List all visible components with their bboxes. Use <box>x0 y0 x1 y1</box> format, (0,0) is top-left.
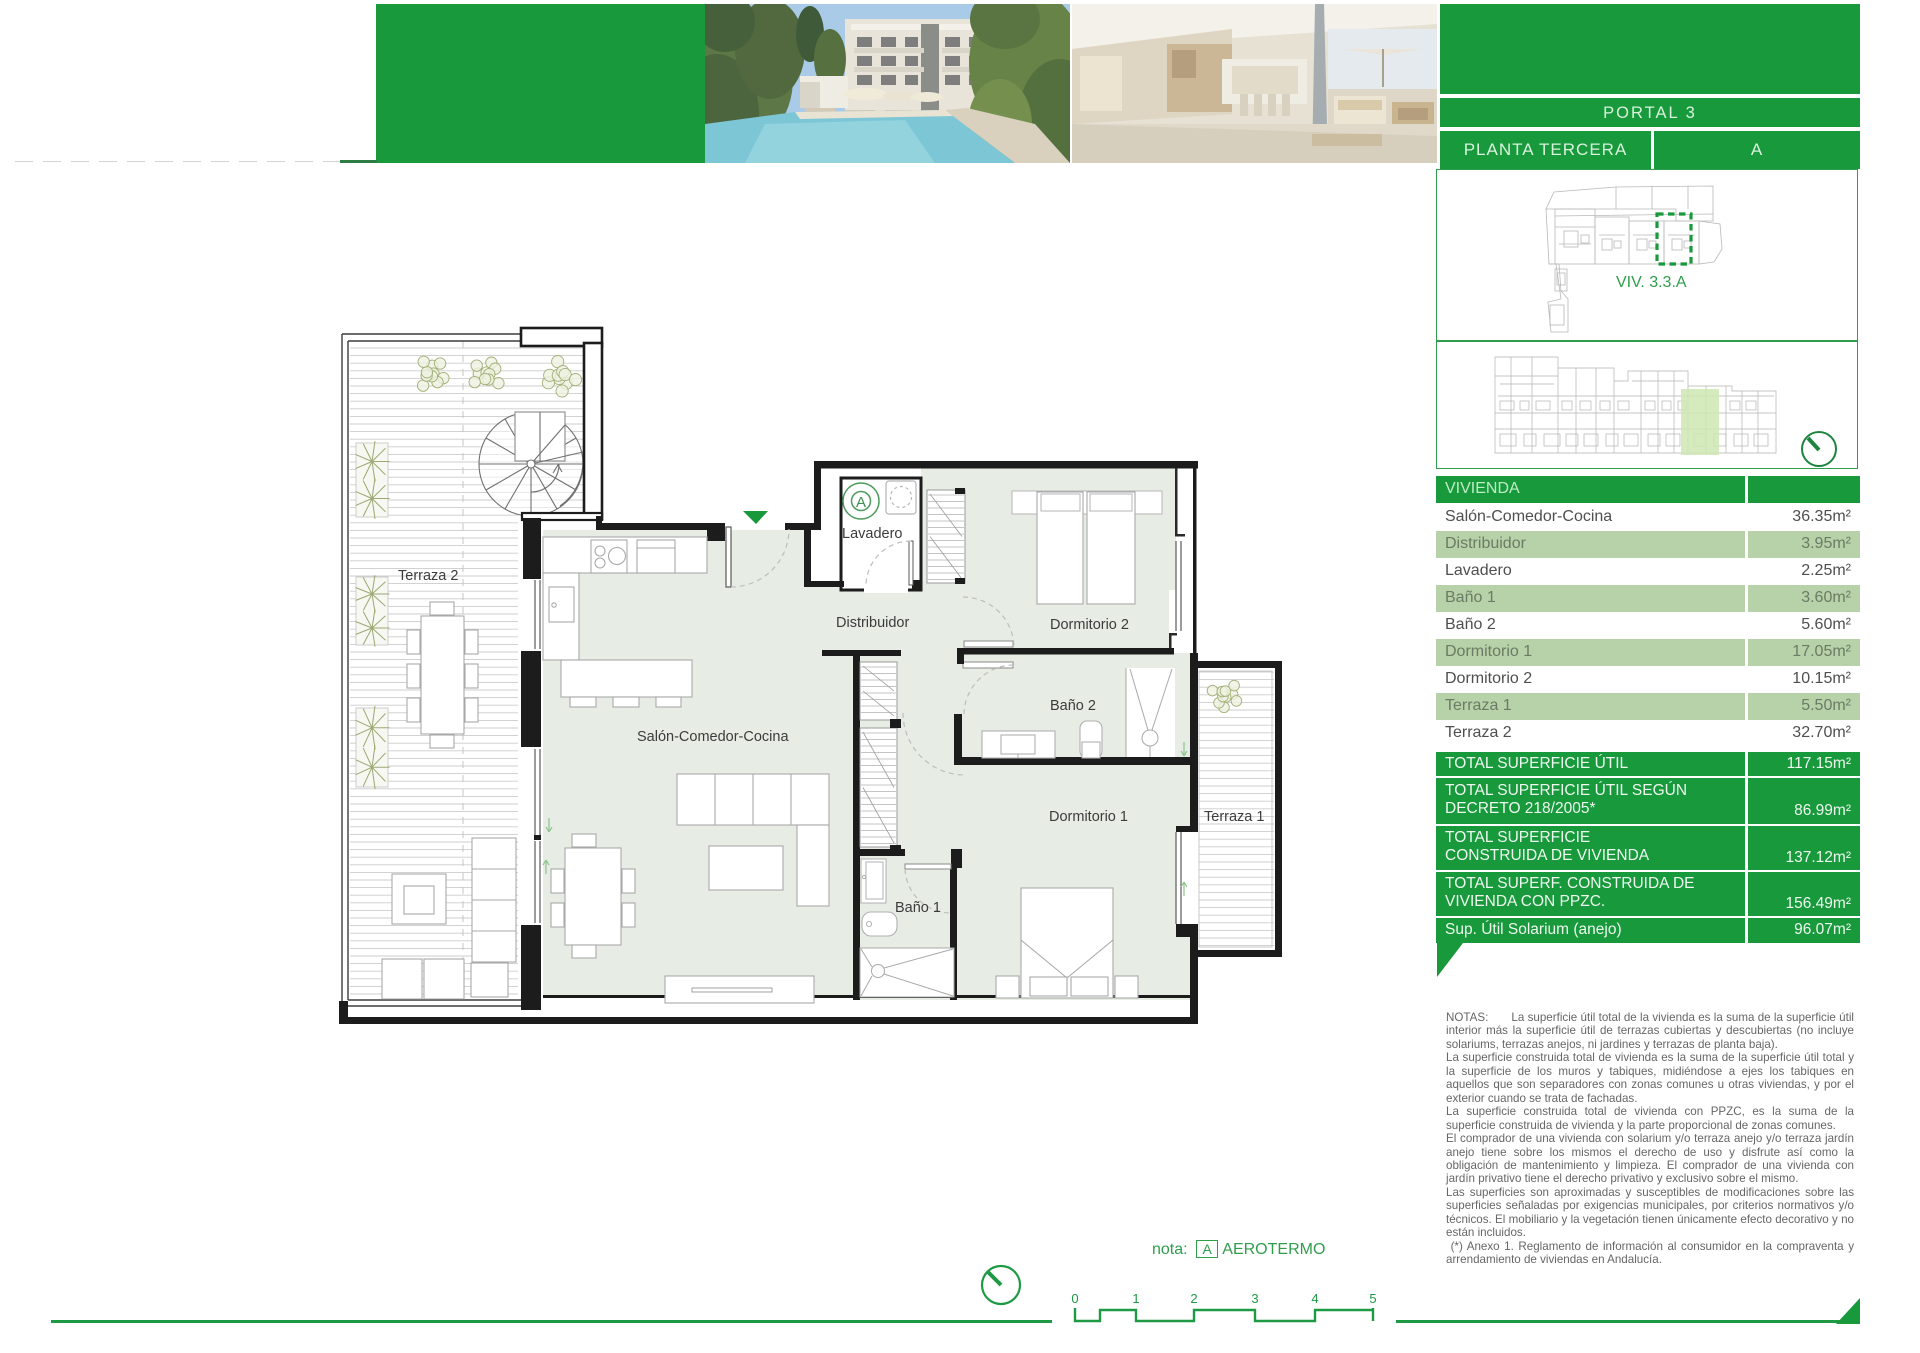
svg-text:Salón-Comedor-Cocina: Salón-Comedor-Cocina <box>637 729 789 745</box>
svg-text:Dormitorio 2: Dormitorio 2 <box>1050 617 1129 633</box>
svg-text:Baño 2: Baño 2 <box>1050 698 1096 714</box>
svg-text:2: 2 <box>1190 1291 1197 1306</box>
svg-text:Dormitorio 1: Dormitorio 1 <box>1049 809 1128 825</box>
svg-text:3: 3 <box>1251 1291 1258 1306</box>
svg-text:Distribuidor: Distribuidor <box>836 615 909 631</box>
svg-text:Lavadero: Lavadero <box>842 526 902 542</box>
svg-text:Terraza 1: Terraza 1 <box>1204 809 1264 825</box>
svg-text:1: 1 <box>1132 1291 1139 1306</box>
svg-text:4: 4 <box>1311 1291 1318 1306</box>
svg-text:5: 5 <box>1369 1291 1376 1306</box>
svg-text:0: 0 <box>1071 1291 1078 1306</box>
svg-text:VIV. 3.3.A: VIV. 3.3.A <box>1616 274 1687 291</box>
svg-text:Terraza 2: Terraza 2 <box>398 568 458 584</box>
svg-text:Baño 1: Baño 1 <box>895 900 941 916</box>
svg-text:A: A <box>856 494 866 511</box>
